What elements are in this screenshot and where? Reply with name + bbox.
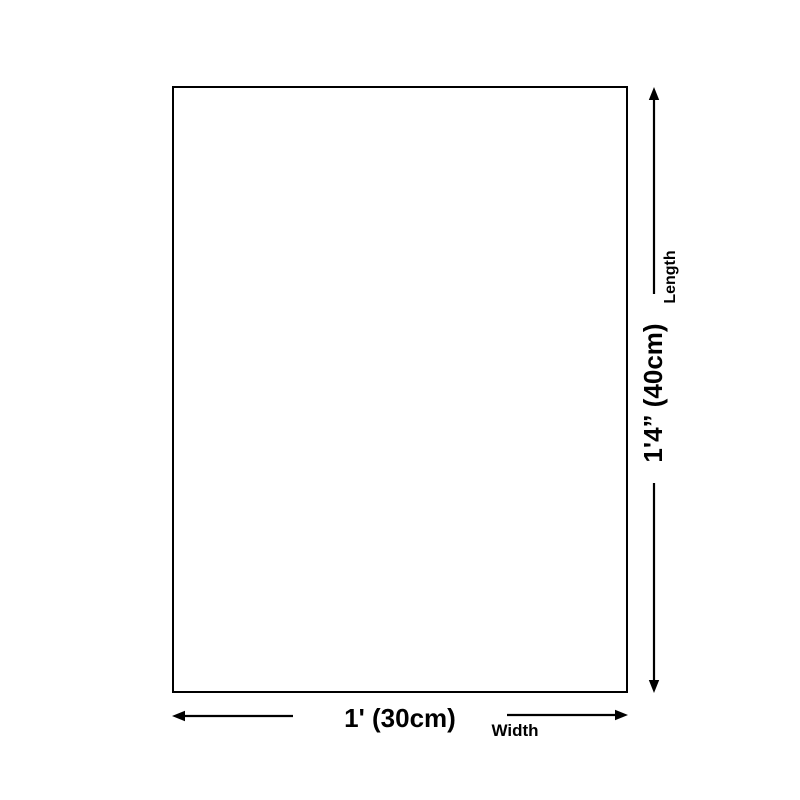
product-outline-rectangle — [172, 86, 628, 693]
width-axis-label: Width — [465, 721, 565, 741]
dimension-diagram: Length 1'4” (40cm) 1' (30cm) Width — [0, 0, 800, 800]
width-arrow-right-icon — [507, 708, 628, 722]
length-arrow-up-icon — [647, 87, 661, 294]
width-arrow-left-icon — [172, 709, 293, 723]
length-arrow-down-icon — [647, 483, 661, 693]
length-value: 1'4” (40cm) — [638, 293, 668, 493]
